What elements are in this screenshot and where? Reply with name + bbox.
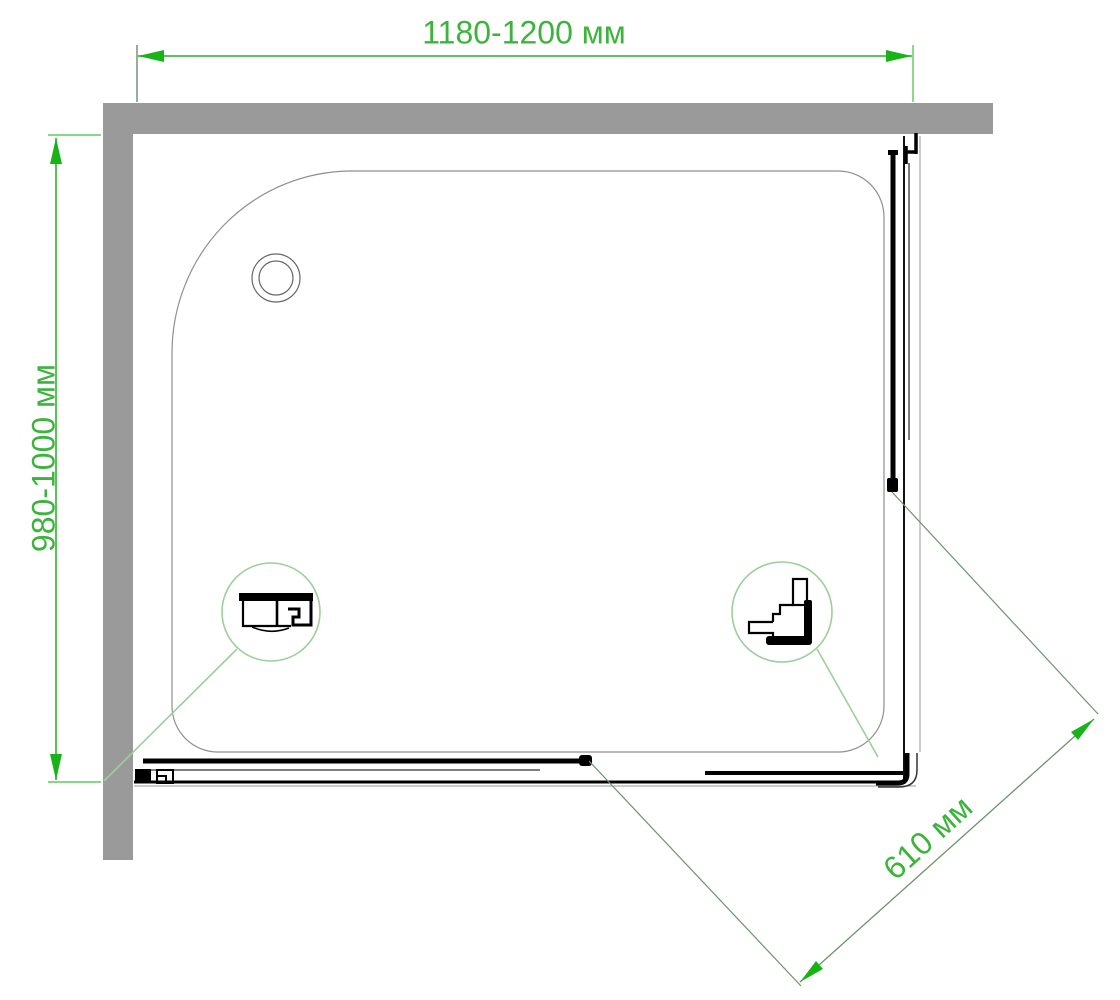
corner-profile <box>876 753 907 783</box>
dimension-depth-label: 980-1000 мм <box>26 364 63 552</box>
shower-tray <box>172 171 884 752</box>
bottom-panel-assembly <box>134 753 917 787</box>
wall-left <box>103 134 133 860</box>
right-door-handle <box>887 478 898 492</box>
right-wall-profile <box>906 133 916 164</box>
arrow-left-icon <box>138 50 164 62</box>
arrow-up-icon <box>50 138 62 164</box>
tray-outline <box>172 171 884 752</box>
diagram-stage: 1180-1200 мм 980-1000 мм 610 мм <box>0 0 1120 1000</box>
right-panel-assembly <box>887 133 920 780</box>
dimension-width-label: 1180-1200 мм <box>422 15 626 52</box>
bottom-wall-profile <box>135 769 151 783</box>
dimension-width <box>137 45 913 102</box>
arrow-right-icon <box>886 50 912 62</box>
right-door-top-cap <box>888 150 898 155</box>
drawing-canvas <box>0 0 1120 1000</box>
bottom-door-handle <box>579 755 592 766</box>
arrow-down-icon <box>50 754 62 780</box>
wall-top <box>103 103 993 134</box>
